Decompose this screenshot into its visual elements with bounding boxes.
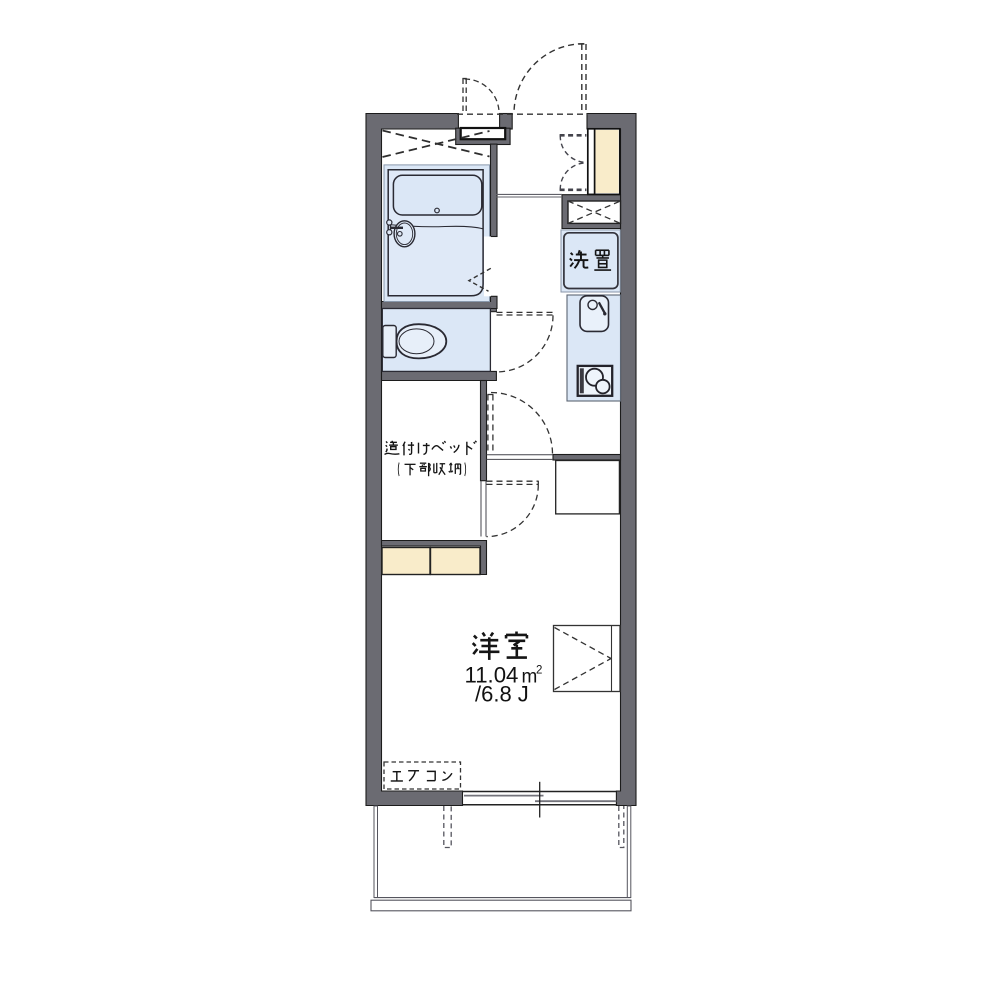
svg-text:2: 2 xyxy=(536,665,542,677)
svg-text:/6.8 J: /6.8 J xyxy=(475,682,529,707)
